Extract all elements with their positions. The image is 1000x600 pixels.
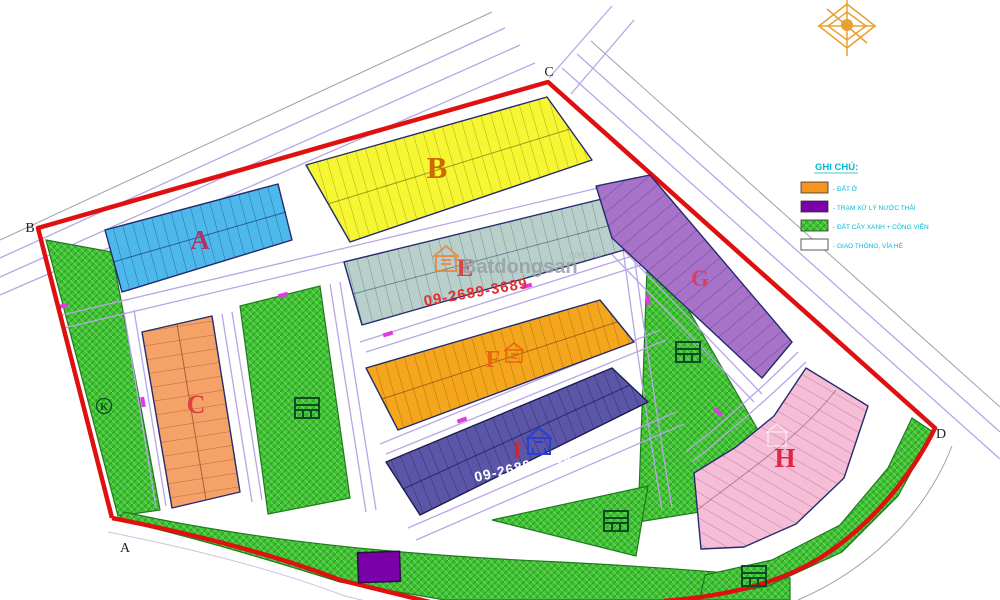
legend-title: GHI CHÚ:	[815, 161, 858, 173]
legend-swatch-green	[801, 220, 828, 231]
road-label-d: D	[936, 427, 946, 442]
block-a-label: A	[190, 225, 210, 255]
block-h-label: H	[774, 443, 795, 473]
legend-label-treatment: - TRẠM XỬ LÝ NƯỚC THẢI	[833, 203, 916, 212]
legend-swatch-traffic	[801, 239, 828, 250]
road-label-c: C	[544, 65, 553, 80]
legend-label-traffic: - GIAO THÔNG, VỈA HÈ	[833, 241, 904, 250]
legend-swatch-residential	[801, 182, 828, 193]
block-c-label: C	[187, 390, 206, 419]
treatment-station	[357, 551, 400, 582]
watermark-brand-suffix: .com.vn	[566, 250, 601, 261]
block-g-label: G	[691, 266, 709, 291]
block-b-label: B	[427, 150, 448, 185]
park-label-k: K	[100, 402, 108, 413]
site-plan-map: A B C E F G H I Batdongsan .com.vn 09-26…	[0, 0, 1000, 600]
watermark-brand: Batdongsan	[462, 256, 578, 278]
block-f-label: F	[486, 347, 501, 373]
road-label-a: A	[120, 541, 131, 556]
plan-canvas: A B C E F G H I Batdongsan .com.vn 09-26…	[0, 0, 1000, 600]
road-label-b: B	[25, 221, 34, 236]
legend-swatch-treatment	[801, 201, 828, 212]
